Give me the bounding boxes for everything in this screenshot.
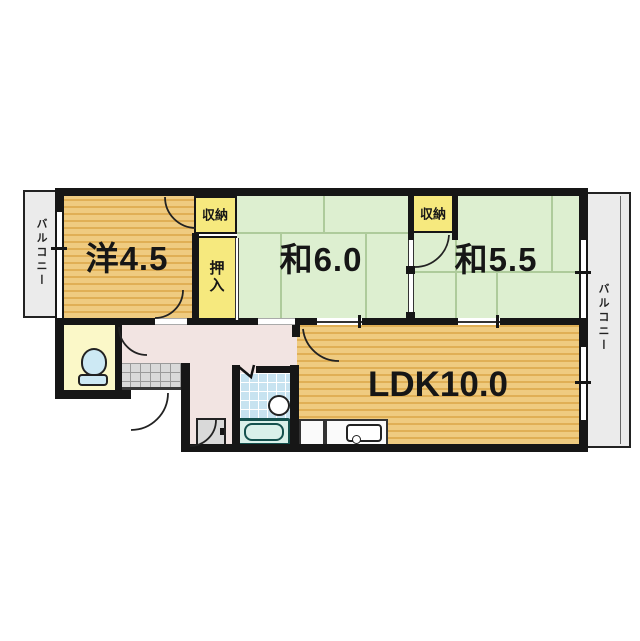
tatami-line xyxy=(323,194,325,234)
balcony-left-label: バルコニー xyxy=(33,218,49,288)
wall-bath-left xyxy=(232,365,240,448)
fusuma-mark xyxy=(406,312,415,320)
tatami6-room-label: 和6.0 xyxy=(280,233,363,281)
wall-bath-right xyxy=(290,365,299,448)
wall-right-top xyxy=(579,188,588,240)
washer-handle xyxy=(220,428,224,435)
oshiire-label: 押入 xyxy=(206,260,227,294)
window-right-upper xyxy=(579,240,588,318)
balcony-right-label: バルコニー xyxy=(595,283,611,353)
kitchen-counter-left xyxy=(299,419,325,446)
western-room-label: 洋4.5 xyxy=(86,232,169,280)
wall-toilet-right xyxy=(115,320,122,392)
sink-drain-knob xyxy=(352,435,361,444)
fusuma-oshiire xyxy=(235,238,239,320)
floor-plan: 洋4.5 和6.0 和5.5 LDK10.0 収納 収納 押入 バルコニー バル… xyxy=(0,0,640,641)
wall-top xyxy=(55,188,588,196)
window-tick xyxy=(51,247,67,250)
wall-mid-a xyxy=(55,318,155,325)
fusuma-divider xyxy=(408,240,414,320)
wall-left-lower xyxy=(55,318,64,399)
hallway-upper xyxy=(117,320,297,365)
window-tick xyxy=(575,381,591,384)
window-tick xyxy=(575,271,591,274)
wall-left-upper xyxy=(55,188,64,212)
closet-right-label: 収納 xyxy=(420,204,446,223)
hall-ldk-threshold xyxy=(258,318,295,325)
wall-divider-top xyxy=(408,194,414,240)
wall-mid-d xyxy=(295,318,317,325)
sliding-tick xyxy=(496,315,499,328)
sliding-tick xyxy=(358,315,361,328)
entrance-tiles xyxy=(120,363,181,390)
wall-genkan-right xyxy=(181,363,190,448)
western-room-door-threshold xyxy=(155,318,187,325)
door-arc-entrance xyxy=(131,393,168,430)
tatami-line xyxy=(365,233,367,320)
wall-mid-h xyxy=(500,318,583,325)
sliding-door-tatami6-ldk xyxy=(317,318,362,325)
wall-hall-ldk-stub xyxy=(292,325,300,337)
wash-basin-icon xyxy=(268,395,290,416)
tatami55-room-label: 和5.5 xyxy=(455,233,538,281)
ldk-room-label: LDK10.0 xyxy=(368,365,508,405)
fusuma-mark xyxy=(406,266,415,274)
wall-bottom xyxy=(181,444,588,452)
toilet-icon xyxy=(81,348,107,376)
wall-oshiire-left xyxy=(192,233,199,320)
toilet-base xyxy=(78,374,108,386)
balcony-right-inner-line xyxy=(620,196,621,444)
bathtub-inner xyxy=(244,423,284,441)
sliding-door-tatami55-ldk xyxy=(458,318,500,325)
window-left xyxy=(55,212,64,318)
tatami-line xyxy=(551,194,553,273)
closet-left-label: 収納 xyxy=(202,205,228,224)
